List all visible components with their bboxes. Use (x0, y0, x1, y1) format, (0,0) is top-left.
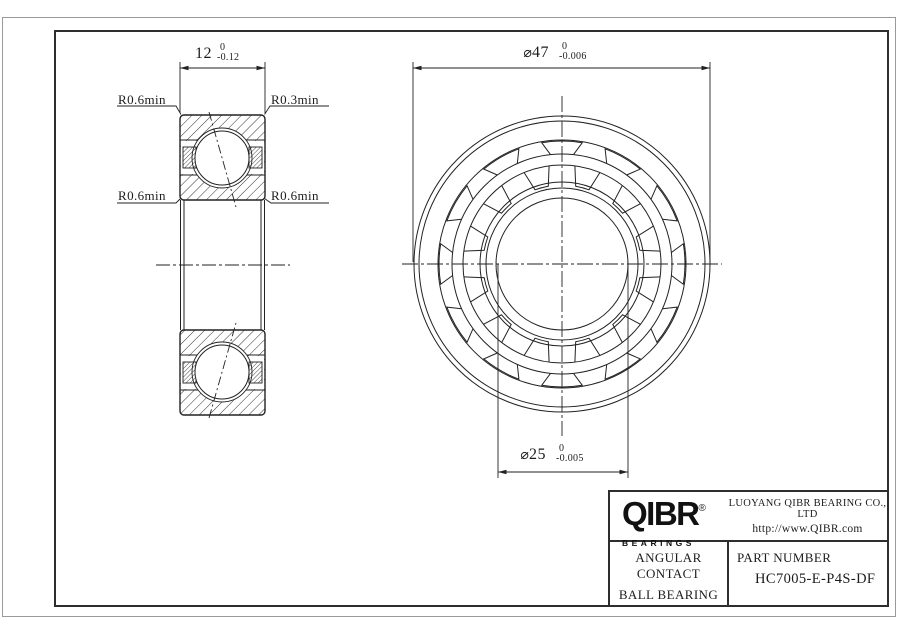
title-block: QIBR® BEARINGS LUOYANG QIBR BEARING CO.,… (608, 490, 889, 607)
side-view (117, 62, 329, 418)
side-view-lower-section (180, 323, 265, 418)
radius-label-top-left: R0.6min (118, 92, 166, 108)
part-number: HC7005-E-P4S-DF (729, 571, 887, 588)
tolerance-lower: -0.006 (559, 52, 587, 62)
company-info: LUOYANG QIBR BEARING CO., LTD http://www… (728, 492, 887, 540)
side-view-upper-section (180, 112, 265, 207)
dim-bore-diameter-value: ⌀25 (520, 446, 546, 464)
tolerance-lower: -0.12 (217, 53, 239, 63)
product-type-cell: ANGULAR CONTACT BALL BEARING (610, 542, 729, 605)
qibr-logo: QIBR® BEARINGS (610, 492, 728, 540)
product-type-line2: BALL BEARING (610, 587, 727, 603)
registered-mark-icon: ® (699, 503, 706, 514)
dim-width-lines (180, 62, 265, 113)
dim-bore-diameter-tolerance: 0 -0.005 (556, 444, 584, 464)
product-type-line1: ANGULAR CONTACT (610, 550, 727, 582)
logo-brand-text: QIBR (622, 495, 699, 532)
diameter-symbol: ⌀ (520, 447, 529, 463)
radius-label-mid-right: R0.6min (271, 188, 319, 204)
title-block-header-row: QIBR® BEARINGS LUOYANG QIBR BEARING CO.,… (610, 492, 887, 542)
dim-outer-diameter-lines (413, 62, 710, 262)
front-view (402, 62, 722, 478)
company-name: LUOYANG QIBR BEARING CO., LTD (728, 498, 887, 520)
title-block-detail-row: ANGULAR CONTACT BALL BEARING PART NUMBER… (610, 542, 887, 605)
diameter-symbol: ⌀ (523, 45, 532, 61)
radius-label-mid-left: R0.6min (118, 188, 166, 204)
dim-outer-diameter-value: ⌀47 (523, 44, 549, 62)
dim-outer-diameter-tolerance: 0 -0.006 (559, 42, 587, 62)
dim-width-tolerance: 0 -0.12 (217, 43, 239, 63)
radius-label-top-right: R0.3min (271, 92, 319, 108)
tolerance-lower: -0.005 (556, 454, 584, 464)
part-number-cell: PART NUMBER HC7005-E-P4S-DF (729, 542, 887, 605)
dim-width-value: 12 (195, 45, 212, 63)
part-number-label: PART NUMBER (729, 550, 887, 566)
company-website: http://www.QIBR.com (728, 523, 887, 535)
